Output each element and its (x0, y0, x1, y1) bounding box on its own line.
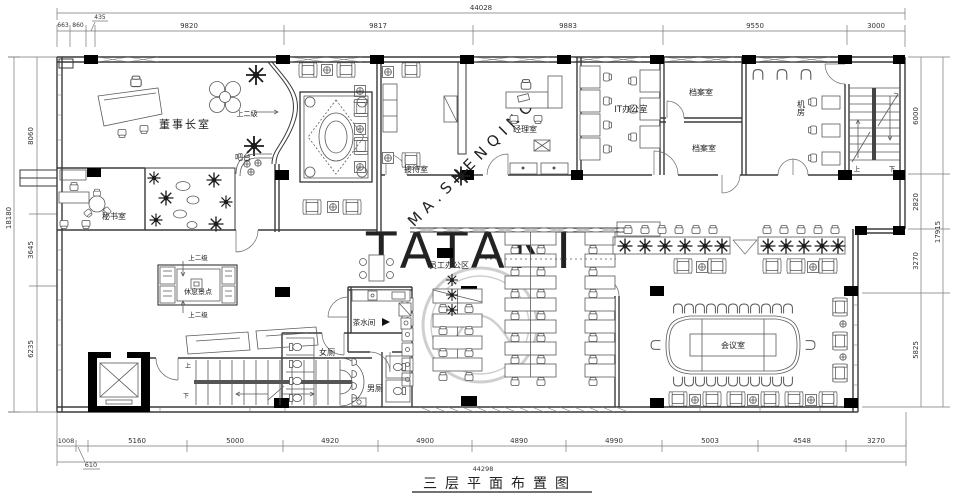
label-reception: 接待室 (404, 164, 428, 174)
label-staff-area: 员工办公区 (429, 260, 469, 270)
dim-bottom-seg: 4990 (605, 437, 623, 445)
note-stair-up-b: 上 (185, 362, 191, 370)
label-rest-spot: 休息景点 (184, 287, 212, 296)
server-room-furniture (753, 70, 840, 165)
label-chairman: 董事长室 (159, 117, 211, 131)
label-manager: 经理室 (513, 124, 537, 134)
watermark-brand-text: TATANI (365, 222, 578, 280)
dimension-top: 44028 663 860 435 9820 9817 9883 9550 30… (57, 4, 905, 47)
label-it-office: IT办公室 (614, 104, 648, 115)
dim-top-seg: 9820 (180, 22, 198, 30)
dim-left-seg: 3645 (27, 241, 35, 259)
desk-cluster-right (585, 232, 615, 386)
dim-left-total: 18180 (5, 207, 13, 229)
dim-top-seg: 860 (72, 22, 84, 29)
dim-right-seg: 2820 (912, 193, 920, 211)
stairwell-top-right (849, 88, 900, 162)
dim-top-total: 44028 (470, 4, 492, 12)
planter-lounge-strip (613, 222, 846, 273)
watermark-diagonal-text: MA.SHENQING (404, 94, 540, 230)
dim-bottom-seg: 5003 (701, 437, 719, 445)
dim-left-seg: 6235 (27, 340, 35, 358)
elevator (88, 352, 150, 412)
note-stair-down-b: 下 (183, 393, 189, 400)
note-stair-down-a: 下 (889, 165, 896, 173)
dim-bottom-seg: 5160 (128, 437, 146, 445)
dim-top-seg: 9817 (369, 22, 387, 30)
dim-bottom-seg: 1008 (58, 437, 75, 445)
plan-title-block: 三层平面布置图 (412, 476, 592, 492)
dimension-bottom: 1008 610 5160 5000 4920 4900 4890 4990 5… (57, 412, 906, 473)
dim-right-seg: 3270 (912, 252, 920, 270)
label-archive-2: 档案室 (692, 143, 716, 153)
label-womens-toilet: 女厕 (319, 347, 335, 357)
dim-bottom-seg: 5000 (226, 437, 244, 445)
label-mens-toilet: 男厕 (367, 384, 383, 393)
floor-plan-drawing: TATANI MA.SHENQING 44028 663 860 435 982… (0, 0, 960, 497)
dim-bottom-seg: 4900 (416, 437, 434, 445)
floor-plan-canvas: TATANI MA.SHENQING 44028 663 860 435 982… (0, 0, 960, 497)
dimension-left: 18180 8060 3645 6235 (5, 57, 57, 412)
rest-spot-block (158, 261, 237, 313)
dim-top-seg: 3000 (867, 22, 885, 30)
dim-top-seg: 9883 (559, 22, 577, 30)
label-tea-room: 茶水间 (353, 317, 376, 327)
label-bar: 吧台 (235, 152, 251, 162)
dim-bottom-seg: 3270 (867, 437, 885, 445)
tea-room-pointer (382, 318, 390, 326)
garden-strip (145, 168, 235, 230)
dim-right-total: 17915 (934, 221, 942, 243)
label-meeting-room: 会议室 (721, 340, 745, 350)
dim-bottom-seg: 4920 (321, 437, 339, 445)
garden-plants (148, 172, 233, 232)
label-archive-1: 档案室 (689, 87, 713, 97)
note-up-two-a: 上二级 (237, 109, 258, 118)
note-up-two-c: 上二级 (188, 310, 208, 319)
meeting-room-furniture (651, 298, 847, 406)
label-secretary: 秘书室 (102, 211, 126, 221)
dim-bottom-total: 44298 (473, 465, 494, 473)
main-staircase (186, 327, 364, 406)
dim-right-seg: 5825 (912, 341, 920, 359)
desk-cluster-left (433, 289, 482, 381)
note-up-two-b: 上二级 (188, 253, 208, 262)
label-server-room: 机房 (797, 99, 806, 117)
desk-cluster-middle (505, 232, 556, 386)
dim-top-seg: 663 (57, 22, 69, 29)
plan-title: 三层平面布置图 (423, 476, 577, 492)
dim-bottom-seg: 4548 (793, 437, 811, 445)
dim-top-seg: 9550 (746, 22, 764, 30)
dim-top-seg: 435 (94, 14, 106, 21)
dim-bottom-seg: 4890 (510, 437, 528, 445)
dim-right-seg: 6000 (912, 107, 920, 125)
note-stair-up-a: 上 (854, 164, 861, 173)
dim-left-seg: 8060 (27, 127, 35, 145)
